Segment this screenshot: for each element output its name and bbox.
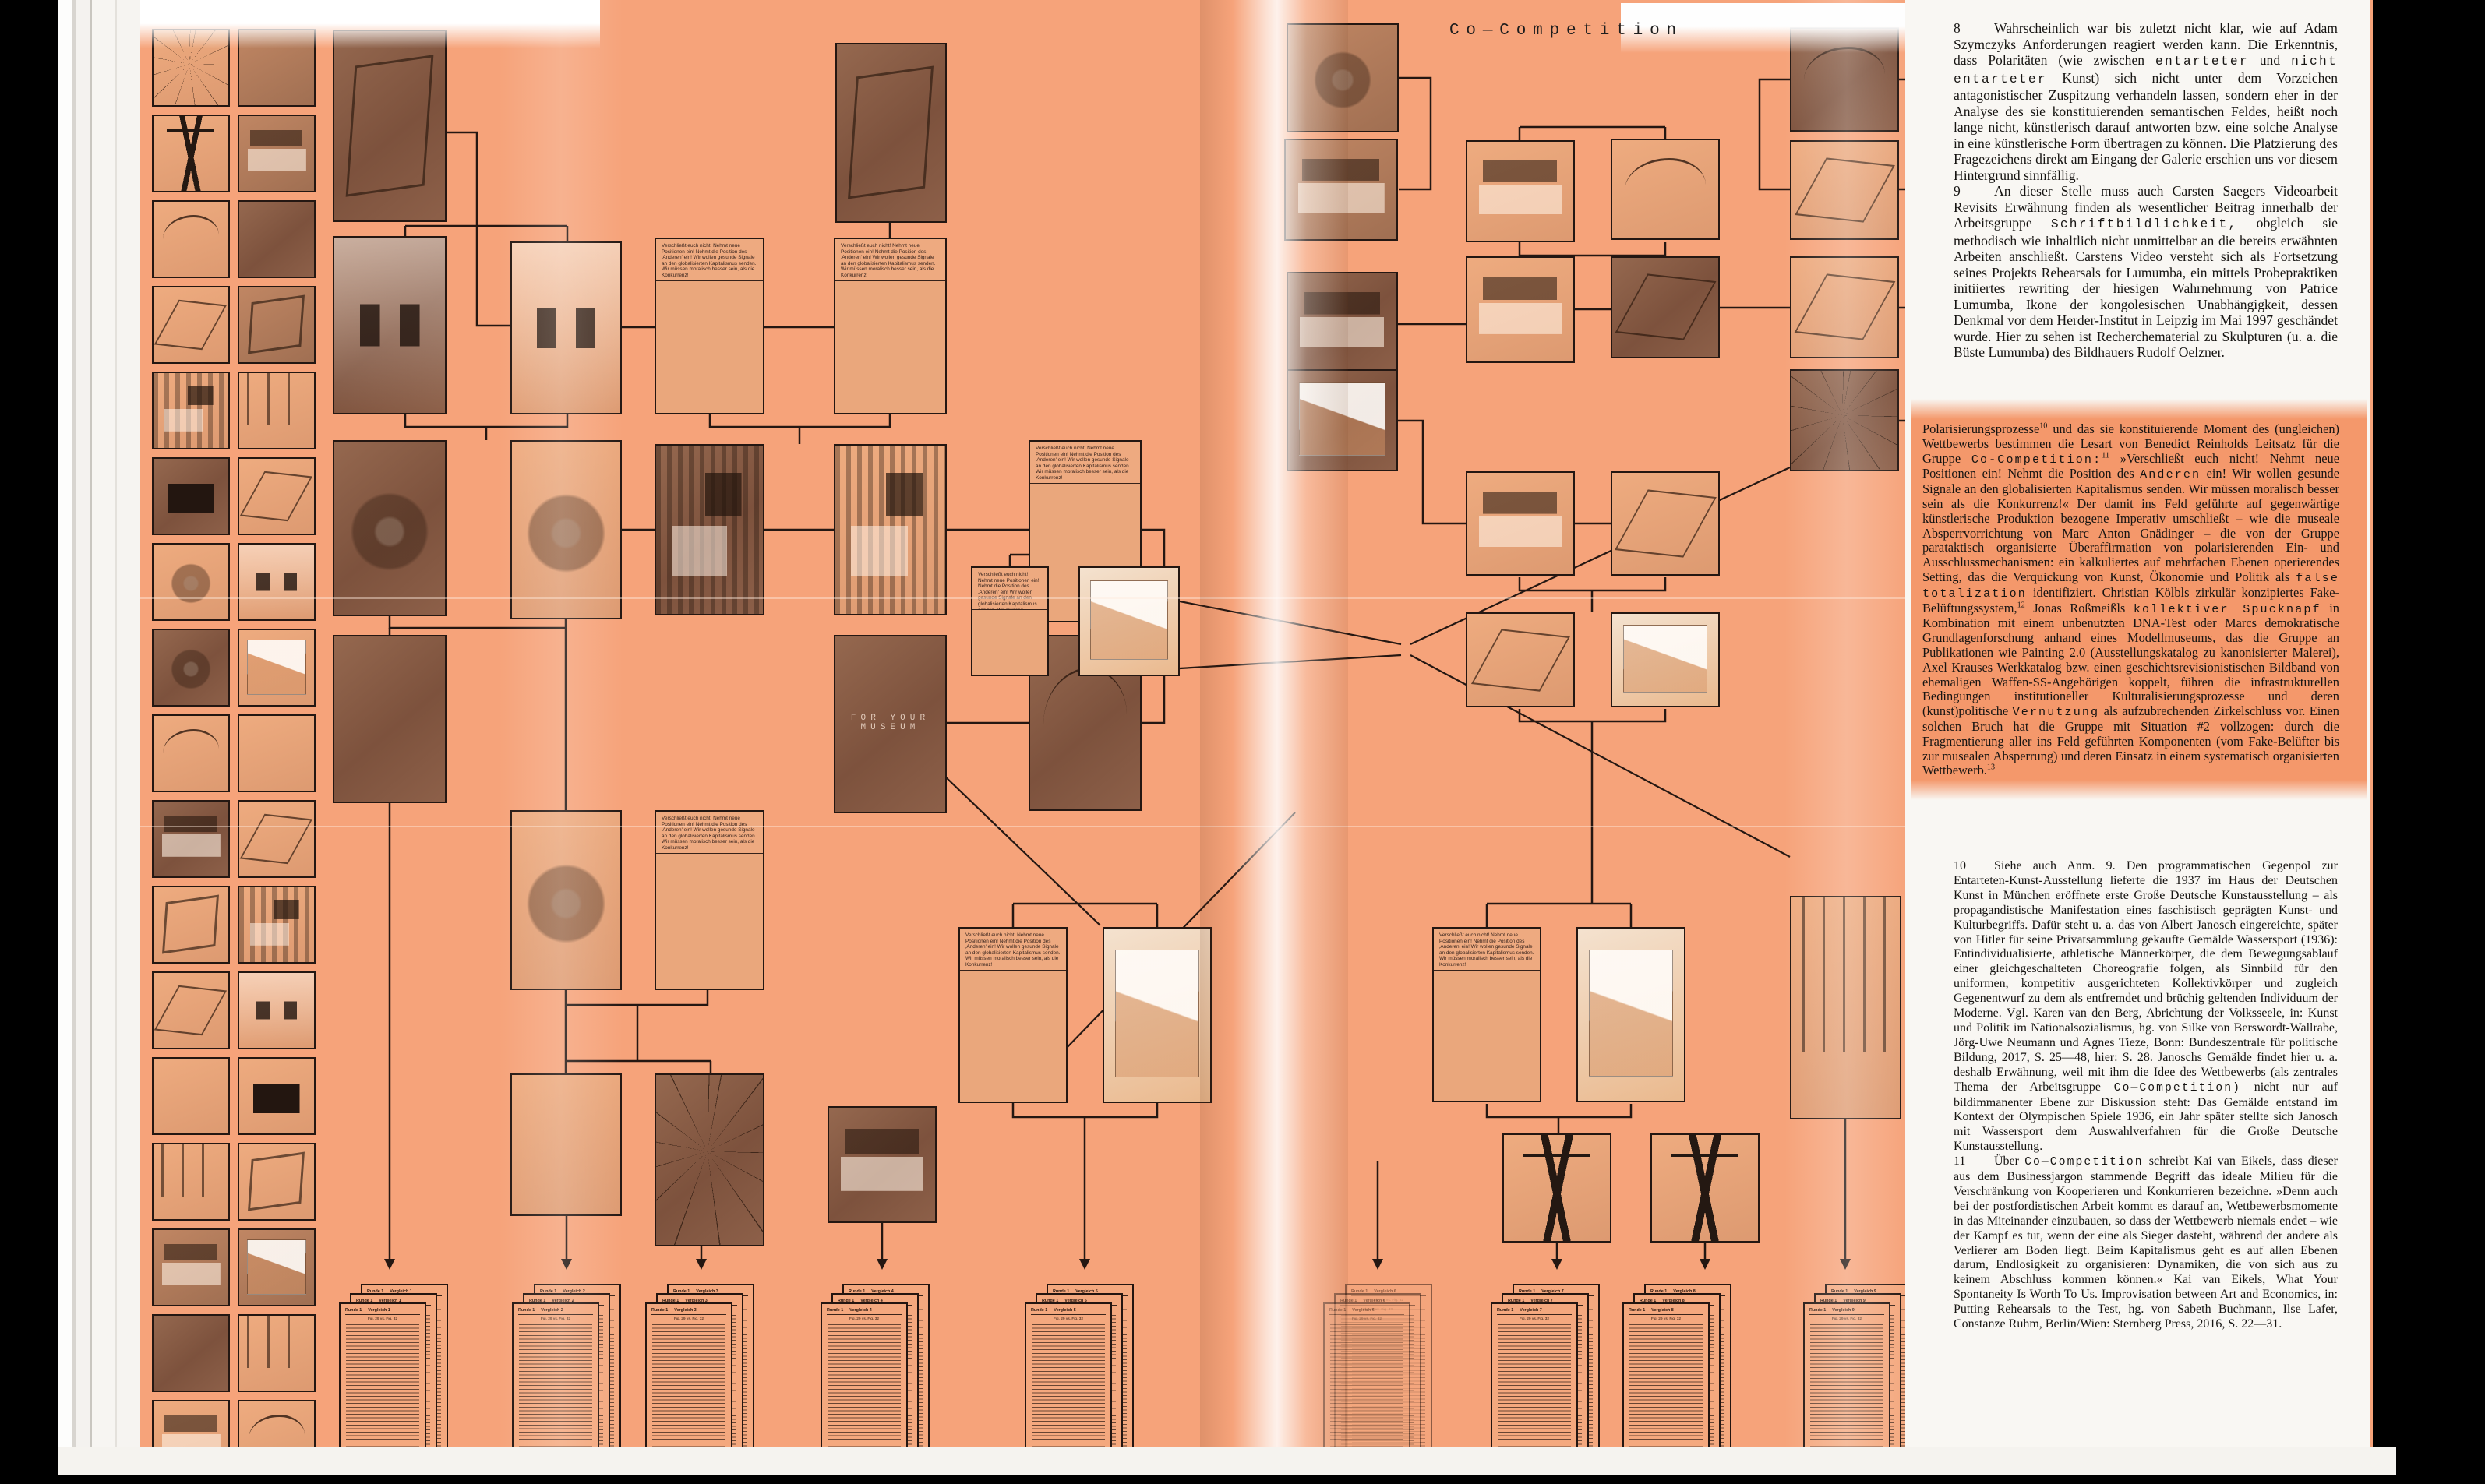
thumbnail [152, 457, 230, 535]
arrowhead-icon [1079, 1259, 1090, 1270]
text-segment: Polarisierungsprozesse [1922, 421, 2039, 436]
sheet-compare-label: Vergleich 1 [368, 1308, 390, 1313]
thumbnail [152, 886, 230, 964]
thumbnail [152, 1143, 230, 1221]
diagram-box-trestle-outline-light [1502, 1133, 1611, 1243]
text-segment-num: 10 [1954, 859, 1994, 874]
diagram-box-conveyor-light [1790, 256, 1899, 358]
diagram-box-room-render [1576, 927, 1685, 1102]
page-bottom-margin [58, 1447, 2396, 1475]
diagram-box-caption-card: Verschließt euch nicht! Nehmt neue Posit… [1432, 927, 1541, 1102]
sheet-header: Runde 1Vergleich 4 [827, 1308, 902, 1313]
diagram-box-conveyor-dark [1611, 256, 1720, 358]
sheet-round-label: Runde 1 [1629, 1308, 1645, 1313]
sheet-header: Runde 1Vergleich 2 [518, 1308, 593, 1313]
diagram-box-bowl-light [510, 440, 622, 619]
sheet-round-label: Runde 1 [345, 1308, 362, 1313]
diagram-box-turntable-photo [1287, 23, 1399, 132]
diagram-box-wire-burst-dark [655, 1073, 764, 1246]
sheet-header: Runde 1Vergleich 9 [1809, 1308, 1884, 1313]
thumbnail [152, 1228, 230, 1306]
diagram-box-sheen-surface-dark [333, 635, 447, 803]
sheet-header: Runde 1Vergleich 3 [651, 1308, 726, 1313]
sheet-round-label: Runde 1 [1497, 1308, 1513, 1313]
diagram-box-chain-dark [1790, 369, 1899, 471]
sheet-caption: Fig. 29 vs. Fig. 32 [1031, 1317, 1106, 1321]
sheet-round-label: Runde 1 [518, 1308, 535, 1313]
connector [710, 414, 890, 427]
sheet-caption: Fig. 29 vs. Fig. 32 [827, 1317, 902, 1321]
thumbnail [238, 200, 316, 278]
sheet-rule [827, 1314, 902, 1315]
card-caption: Verschließt euch nicht! Nehmt neue Posit… [972, 568, 1047, 610]
text-segment-sup: 11 [2102, 451, 2109, 460]
sheet-caption: Fig. 29 vs. Fig. 32 [1629, 1317, 1703, 1321]
connector [1180, 601, 1401, 644]
text-segment: in Kombination mit einem unbenutzten DNA… [1922, 601, 2339, 719]
text-segment-num: 8 [1954, 20, 1994, 37]
diagram-box-caption-card: Verschließt euch nicht! Nehmt neue Posit… [655, 810, 764, 990]
diagram-box-room-corner-dark [1287, 369, 1398, 471]
sheet-compare-label: Vergleich 5 [1054, 1308, 1075, 1313]
diagram-box-room-render-center [1078, 566, 1180, 676]
sheet-caption: Fig. 29 vs. Fig. 32 [518, 1317, 593, 1321]
diagram-box-table-frame-render [333, 30, 447, 222]
thumbnail [238, 1228, 316, 1306]
thumbnail [152, 971, 230, 1049]
card-caption: Verschließt euch nicht! Nehmt neue Posit… [1434, 929, 1540, 971]
text-segment: Jonas Roßmeißls [2025, 601, 2134, 615]
connector [1399, 78, 1431, 189]
sheet-rule [1809, 1314, 1884, 1315]
diagram-box-museum-sign-dark: FOR YOUR MUSEUM [834, 635, 947, 813]
thumbnail [152, 29, 230, 107]
diagram-box-conveyor-light [1611, 471, 1720, 576]
text-segment-sup: 13 [1987, 763, 1995, 772]
connector [1487, 1104, 1631, 1117]
page-title: Co—Competition [1449, 22, 1746, 40]
thumbnail [238, 286, 316, 364]
arrowhead-icon [384, 1259, 395, 1270]
photo-background-bottom [0, 1475, 2485, 1484]
text-segment-spread: Co-Competition: [1971, 453, 2102, 467]
sheet-header: Runde 1Vergleich 5 [1031, 1308, 1106, 1313]
thumbnail [238, 115, 316, 192]
thumbnail [238, 29, 316, 107]
footnote-column: 8Wahrscheinlich war bis zuletzt nicht kl… [1905, 0, 2370, 1475]
diagram-box-crumpled-map-dark [835, 43, 947, 223]
text-segment: Kunst) sich nicht unter dem Vorzeichen a… [1954, 70, 2338, 183]
diagram-box-caption-card: Verschließt euch nicht! Nehmt neue Posit… [655, 238, 764, 414]
thumbnail [152, 629, 230, 707]
thumbnail [238, 800, 316, 878]
diagram-box-caption-card-small: Verschließt euch nicht! Nehmt neue Posit… [971, 566, 1049, 676]
thumbnail [238, 886, 316, 964]
thumbnail [238, 457, 316, 535]
diagram-box-gallery-room-light [510, 241, 622, 414]
diagram-box-museum-model-dark [655, 444, 764, 615]
sheet-compare-label: Vergleich 9 [1832, 1308, 1854, 1313]
thumbnail [238, 629, 316, 707]
sheet-caption: Fig. 29 vs. Fig. 32 [1497, 1317, 1572, 1321]
thumbnail [152, 800, 230, 878]
diagram-box-blank-light [510, 1073, 622, 1216]
thumbnail [238, 543, 316, 621]
connector [566, 990, 708, 1005]
thumbnail [238, 1057, 316, 1135]
sheet-caption: Fig. 29 vs. Fig. 32 [345, 1317, 420, 1321]
arrowhead-icon [877, 1259, 888, 1270]
diagram-box-museum-model-light [834, 444, 947, 615]
paragraph: 10Siehe auch Anm. 9. Den programmatische… [1954, 859, 2338, 1154]
arrowhead-icon [561, 1259, 572, 1270]
sheet-caption: Fig. 29 vs. Fig. 32 [1329, 1317, 1404, 1321]
sheet-compare-label: Vergleich 2 [541, 1308, 563, 1313]
text-segment-spread: Anderen [2140, 467, 2201, 481]
connector [477, 226, 510, 326]
thumbnail [238, 1314, 316, 1392]
card-caption: Verschließt euch nicht! Nehmt neue Posit… [656, 812, 763, 854]
diagram-box-trestle-glyph-light [1650, 1133, 1760, 1243]
sheet-round-label: Runde 1 [1031, 1308, 1047, 1313]
card-caption: Verschließt euch nicht! Nehmt neue Posit… [835, 239, 945, 281]
sheet-round-label: Runde 1 [827, 1308, 843, 1313]
sheet-round-label: Runde 1 [651, 1308, 668, 1313]
sheet-caption: Fig. 29 vs. Fig. 32 [1809, 1317, 1884, 1321]
arrowhead-icon [1372, 1259, 1383, 1270]
sheet-compare-label: Vergleich 7 [1520, 1308, 1541, 1313]
footnotes-8-9: 8Wahrscheinlich war bis zuletzt nicht kl… [1905, 20, 2370, 361]
thumbnail [152, 1057, 230, 1135]
footnotes-10-11: 10Siehe auch Anm. 9. Den programmatische… [1905, 859, 2370, 1332]
paragraph: Polarisierungsprozesse10 und das sie kon… [1922, 422, 2339, 778]
diagram-box-dna-test-case-light [1466, 256, 1575, 363]
connector [1180, 655, 1401, 668]
text-segment: Siehe auch Anm. 9. Den programmatischen … [1954, 859, 2338, 1094]
diagram-box-gallery-room-dark [333, 236, 447, 414]
box-label: FOR YOUR MUSEUM [835, 714, 945, 732]
card-caption: Verschließt euch nicht! Nehmt neue Posit… [656, 239, 763, 281]
sheet-header: Runde 1Vergleich 8 [1629, 1308, 1703, 1313]
arrowhead-icon [696, 1259, 707, 1270]
diagram-box-hanging-items-light [1790, 896, 1901, 1119]
connector [405, 414, 567, 427]
text-segment-num: 11 [1954, 1154, 1994, 1169]
diagram-box-dna-test-case-light [1466, 471, 1575, 576]
connector [1760, 79, 1790, 189]
text-segment: schreibt Kai van Eikels, dass dieser aus… [1954, 1154, 2338, 1331]
sheet-compare-label: Vergleich 6 [1352, 1308, 1374, 1313]
thumbnail [152, 372, 230, 449]
paragraph: 11Über Co—Competition schreibt Kai van E… [1954, 1154, 2338, 1332]
thumbnail [152, 286, 230, 364]
diagram-box-room-render [1103, 927, 1212, 1103]
sheet-rule [1629, 1314, 1703, 1315]
photo-background-left [0, 0, 58, 1484]
diagram-box-dna-test-case-dark [1287, 272, 1398, 376]
thumbnail [152, 714, 230, 792]
text-segment-spread: kollektiver Spucknapf [2134, 602, 2321, 616]
sheet-rule [1329, 1314, 1404, 1315]
sheet-rule [1497, 1314, 1572, 1315]
arrowhead-icon [1700, 1259, 1710, 1270]
diagram-box-books-photo-dark [1284, 139, 1398, 241]
text-segment: ein! Wir wollen gesunde Signale an den g… [1922, 466, 2339, 584]
thumbnail [152, 543, 230, 621]
card-caption: Verschließt euch nicht! Nehmt neue Posit… [1030, 442, 1140, 484]
text-segment-spread: entarteter [2155, 55, 2249, 69]
diagram-box-bent-wire-dark [1790, 27, 1899, 132]
sheet-compare-label: Vergleich 4 [849, 1308, 871, 1313]
sheet-compare-label: Vergleich 3 [674, 1308, 696, 1313]
text-segment-sup: 10 [2039, 422, 2047, 431]
thumbnail [152, 1314, 230, 1392]
diagram-box-floor-plan-light [1466, 612, 1575, 707]
sheet-rule [1031, 1314, 1106, 1315]
sheet-header: Runde 1Vergleich 7 [1497, 1308, 1572, 1313]
arrowhead-icon [1840, 1259, 1851, 1270]
text-segment-spread: Schriftbildlichkeit, [2051, 217, 2238, 231]
sheet-header: Runde 1Vergleich 6 [1329, 1308, 1404, 1313]
connector [1013, 1103, 1157, 1117]
text-segment-spread: Co—Competition) [2114, 1082, 2241, 1094]
sheet-rule [518, 1314, 593, 1315]
connector [1520, 242, 1665, 256]
sheet-round-label: Runde 1 [1809, 1308, 1826, 1313]
sheet-header: Runde 1Vergleich 1 [345, 1308, 420, 1313]
thumbnail [152, 200, 230, 278]
text-segment: und [2249, 52, 2291, 68]
diagram-box-room-render [1611, 612, 1720, 707]
thumbnail [238, 1143, 316, 1221]
diagram-box-hammock-render-dark [828, 1106, 937, 1223]
diagram-box-caption-card: Verschließt euch nicht! Nehmt neue Posit… [834, 238, 947, 414]
sheet-compare-label: Vergleich 8 [1651, 1308, 1673, 1313]
highlight-paragraph: Polarisierungsprozesse10 und das sie kon… [1911, 399, 2367, 800]
paragraph: 8Wahrscheinlich war bis zuletzt nicht kl… [1954, 20, 2338, 183]
thumbnail [152, 115, 230, 192]
text-segment-sup: 12 [2017, 601, 2025, 609]
paragraph: 9An dieser Stelle muss auch Carsten Saeg… [1954, 183, 2338, 361]
photo-background-right [2396, 0, 2485, 1484]
book-spread: Verschließt euch nicht! Nehmt neue Posit… [0, 0, 2485, 1484]
connector [447, 132, 477, 226]
diagram-box-caption-card: Verschließt euch nicht! Nehmt neue Posit… [958, 927, 1068, 1103]
text-segment: Über [1994, 1154, 2024, 1168]
diagram-box-envelope-light [1790, 140, 1899, 240]
thumbnail [238, 372, 316, 449]
diagram-box-bowl-dark [333, 440, 447, 616]
sheet-caption: Fig. 29 vs. Fig. 32 [651, 1317, 726, 1321]
diagram-box-books-relief-light [1466, 140, 1575, 242]
text-segment: obgleich sie methodisch wie inhaltlich n… [1954, 215, 2338, 360]
card-caption: Verschließt euch nicht! Nehmt neue Posit… [960, 929, 1066, 971]
arrowhead-icon [1551, 1259, 1562, 1270]
text-segment-spread: Co—Competition [2024, 1156, 2144, 1169]
diagram-box-bowl-outline-light [510, 810, 622, 990]
thumbnail [238, 714, 316, 792]
sheet-rule [345, 1314, 420, 1315]
sheet-round-label: Runde 1 [1329, 1308, 1346, 1313]
text-segment-num: 9 [1954, 183, 1994, 199]
connector [1398, 421, 1466, 523]
text-segment-spread: Vernutzung [2013, 705, 2100, 719]
diagram-box-bent-wire-light [1611, 139, 1720, 240]
thumbnail [238, 971, 316, 1049]
connector [1520, 709, 1665, 721]
sheet-rule [651, 1314, 726, 1315]
